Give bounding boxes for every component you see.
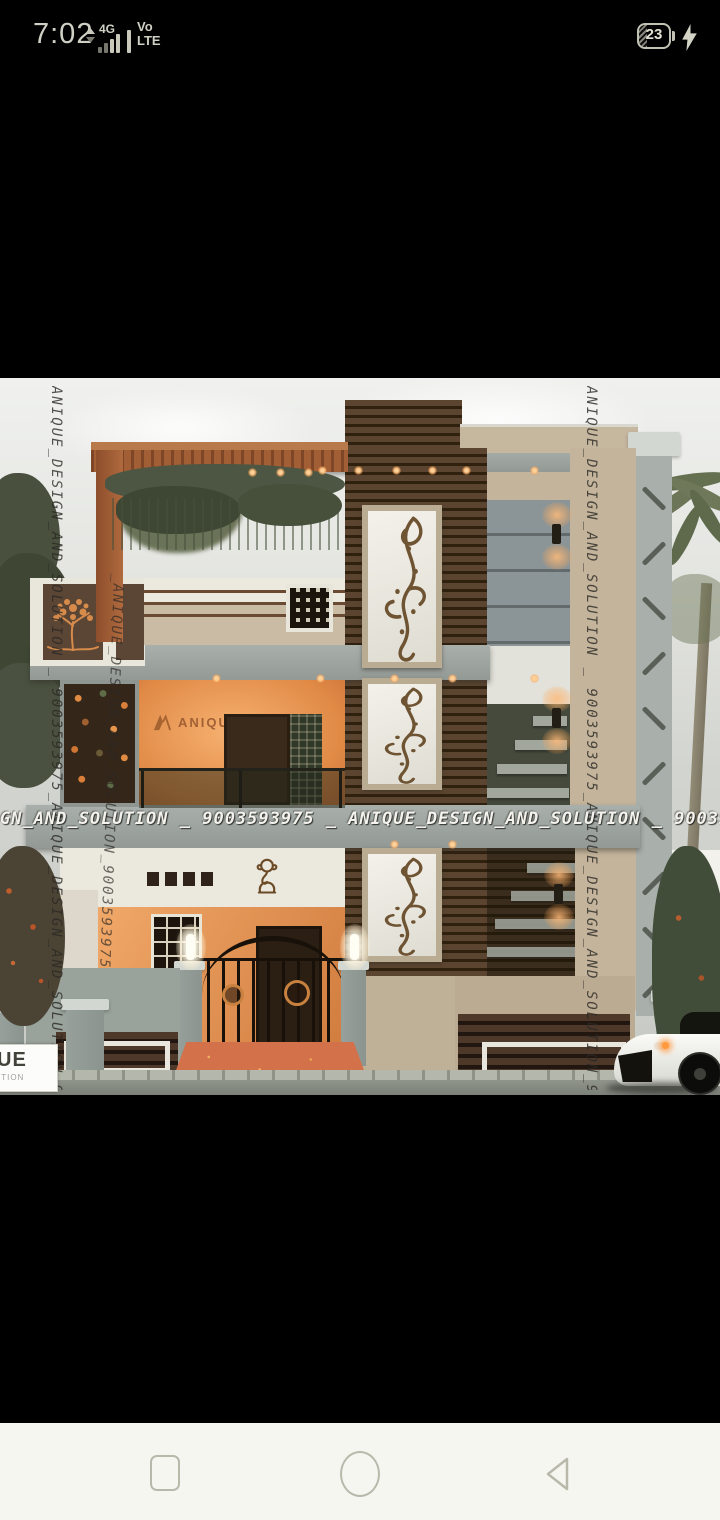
pillar-lamp [186,934,195,960]
elevation-photo[interactable]: ANIQUE [0,378,720,1095]
home-button circle-icon[interactable] [340,1451,380,1497]
battery-percent: 23 [639,26,669,43]
floral-panel-middle [362,678,442,790]
tree-motif [43,584,103,660]
recents-button square-icon[interactable] [150,1455,180,1491]
clock: 7:02 [33,18,93,51]
sports-car [604,1012,720,1095]
charging-bolt-icon [682,24,697,51]
navigation-bar [0,1423,720,1520]
signal-bars-icon [98,34,124,53]
sconce-glow [544,904,574,930]
hex-panel-frame [60,680,139,807]
wall-sconce [552,708,561,728]
wall-sconce [554,884,563,904]
pillar-lamp [350,934,359,960]
floral-motif [368,684,436,784]
floor-slab-lower [26,805,640,848]
floral-motif [368,854,436,956]
back-button triangle-icon[interactable] [538,1453,580,1495]
car-hub [694,1068,706,1080]
floral-panel-lower [362,848,442,962]
phone-screen: 7:02 4G VoLTE 23 [0,0,720,1520]
gate-medallion [222,984,244,1006]
glass-balustrade [139,768,345,808]
ground-lintel-band [60,848,345,907]
wall-sconce [552,524,561,544]
vine-strands [112,498,340,550]
wood-clad-tower-top [345,400,462,450]
signal-bar-sim2-icon [127,30,131,53]
wall-above-glass [487,472,570,500]
pergola-top-rail [91,442,348,450]
gate-medallion [284,980,310,1006]
battery-icon: 23 [637,23,671,49]
jali-grille-window [286,584,333,632]
anique-mark-icon [151,712,173,732]
parapet-panel-tree [43,584,103,660]
battery-nub [672,31,675,41]
balcony-interior: ANIQUE [139,680,345,805]
floral-panel-upper [362,505,442,668]
status-bar: 7:02 4G VoLTE 23 [0,0,720,80]
hex-jali-glow [64,684,135,803]
sconce-glow [542,728,572,754]
wall-pillar-cap [61,999,109,1010]
volte-indicator: VoLTE [137,20,161,48]
car-headlight-glow [662,1042,669,1049]
corner-brand-logo: UE LUTION [0,1044,58,1092]
data-arrows-icon [86,28,95,43]
floral-motif [368,511,436,662]
sconce-glow [542,544,572,570]
side-wall-beige [570,448,636,1010]
ganesha-motif [253,856,281,894]
